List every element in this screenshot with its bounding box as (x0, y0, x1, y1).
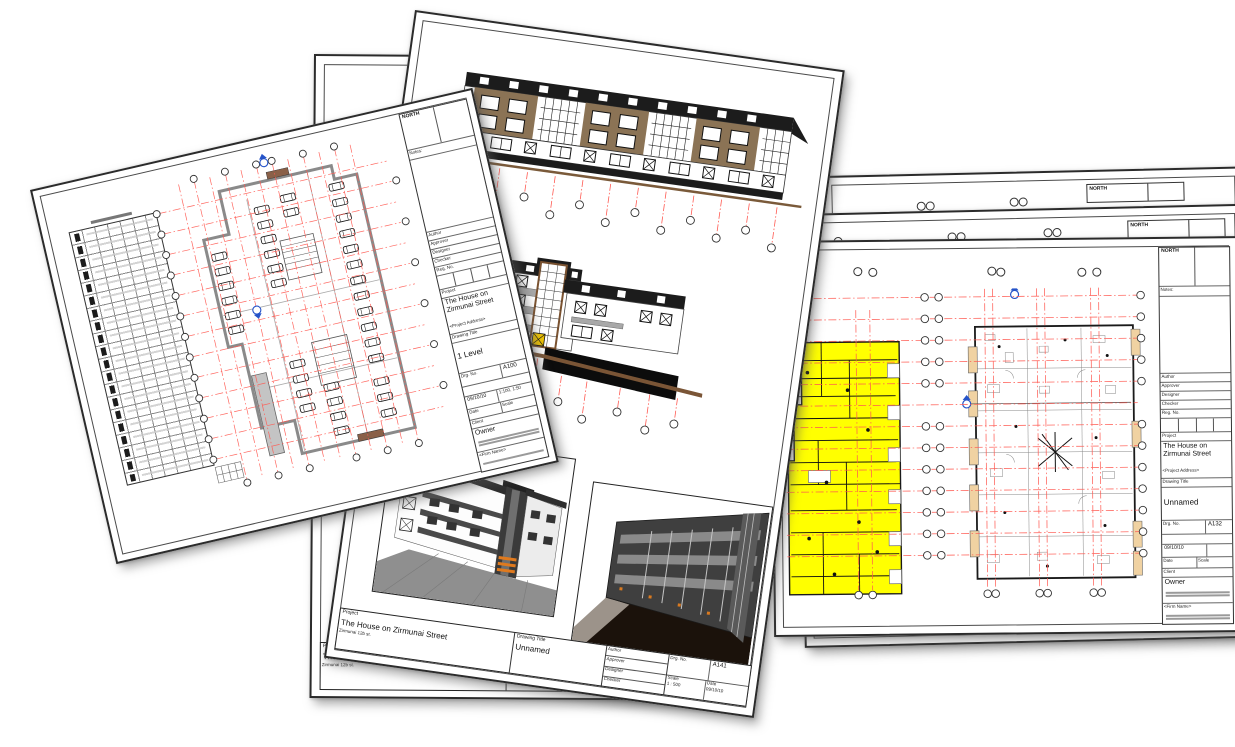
approver-label: Approver (1161, 382, 1231, 389)
date-value: 09/10/10 (1162, 544, 1206, 551)
sheet-floor-plan: NORTH Notes: Author Approver Designer Ch… (770, 236, 1235, 637)
drawing-title-value: Unnamed (1162, 487, 1232, 509)
key-plan (215, 462, 244, 483)
designer-label: Designer (1161, 391, 1231, 398)
grid-bubble (1019, 197, 1028, 206)
grid-bubble (926, 201, 935, 210)
drawing-title-label: Drawing Title (1162, 478, 1232, 485)
grid-bubble (1092, 268, 1101, 277)
notes-area (1160, 296, 1231, 374)
drg-no-value: A132 (1206, 520, 1232, 529)
client-label: Client (1162, 568, 1232, 575)
north-label: NORTH (1159, 248, 1194, 255)
number-cell: Drg. No. A141 Scale 1 : 500 Date 09/10/1… (664, 655, 751, 706)
grid-bubble (917, 202, 926, 211)
grid-bubble (987, 267, 996, 276)
project-address: <Project Address> (1161, 467, 1231, 474)
drg-no-label: Drg. No. (1162, 520, 1205, 526)
title-block: NORTH Notes: Author Approver Designer Ch… (1158, 246, 1234, 625)
grid-bubble (853, 267, 862, 276)
scale-label: Scale (1197, 557, 1232, 563)
north-label: NORTH (400, 107, 434, 121)
firm-name: <Firm Name> (1163, 603, 1233, 610)
scale-value (1207, 544, 1232, 545)
date-label: Date (1162, 558, 1196, 564)
notes-label: Notes: (1160, 286, 1230, 293)
checker-label: Checker (1161, 400, 1231, 407)
north-arrow-area (433, 100, 474, 143)
grid-bubble (868, 268, 877, 277)
north-box: NORTH (1086, 182, 1184, 203)
signoff-cell: Author Approver Designer Checker (602, 646, 670, 694)
floor-plan-drawing (785, 287, 1150, 601)
author-label: Author (1160, 373, 1230, 380)
grid-bubble (1010, 198, 1019, 207)
project-name: The House on Zirmunai Street (1161, 441, 1231, 460)
3d-view-street-drawing (572, 483, 771, 666)
project-label: Project (1161, 432, 1231, 439)
client-name: Owner (1163, 577, 1233, 588)
grid-bubble (996, 268, 1005, 277)
sheet-collage: NORTH NORTH Project The House on Zirmuna… (0, 0, 1235, 747)
north-arrow-area (1195, 247, 1230, 285)
grid-bubble (1052, 228, 1061, 237)
north-label: NORTH (1087, 184, 1148, 202)
project-cell: Project The House on Zirmunai Street Zir… (335, 609, 515, 673)
3d-view-street (570, 481, 773, 669)
grid-bubble (1043, 228, 1052, 237)
grid-bubble (1077, 268, 1086, 277)
north-label: NORTH (1128, 220, 1189, 238)
reg-no-label: Reg. No. (1161, 409, 1231, 416)
